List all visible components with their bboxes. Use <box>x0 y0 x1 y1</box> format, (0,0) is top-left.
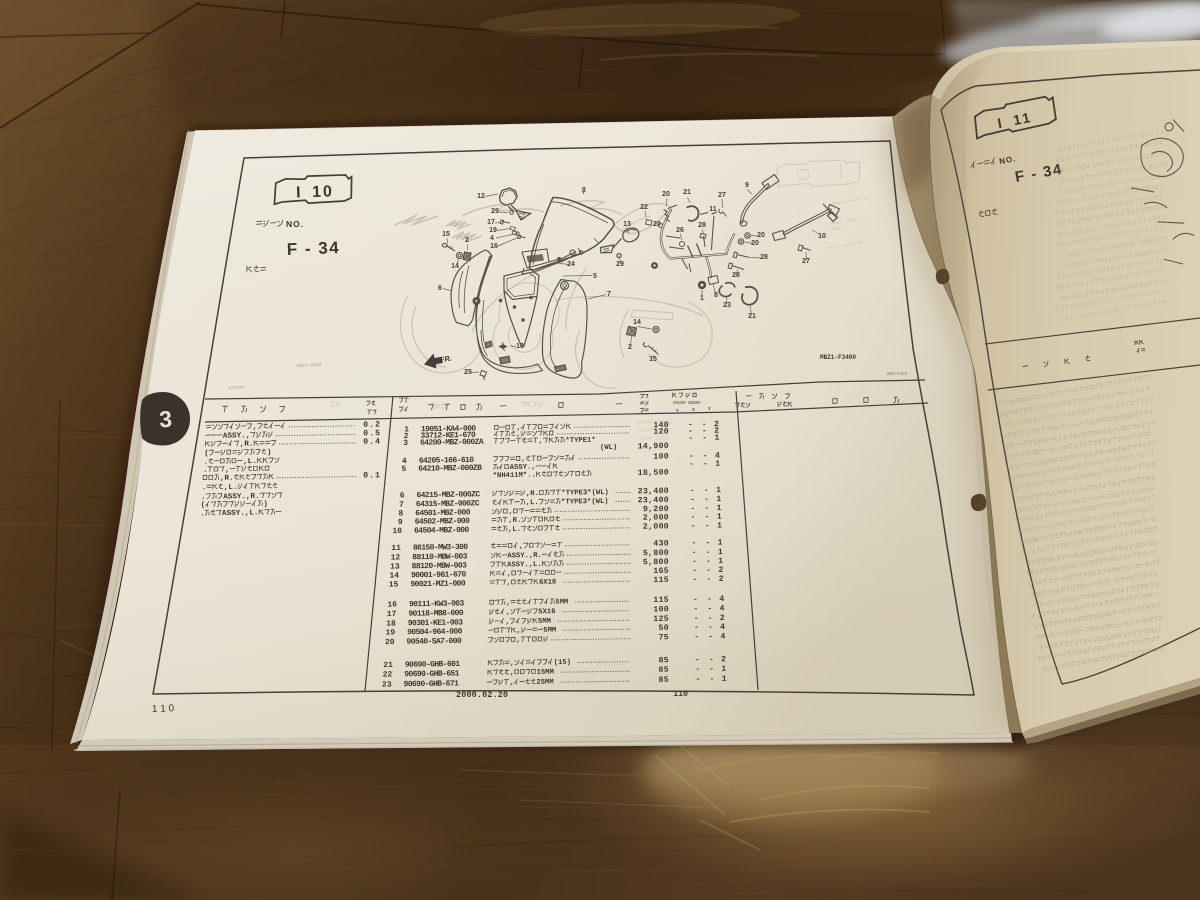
svg-text:50: 50 <box>658 624 669 633</box>
svg-text:0.4: 0.4 <box>363 438 381 447</box>
svg-text:25: 25 <box>464 369 472 376</box>
svg-text:*TYPE1*: *TYPE1* <box>565 437 595 445</box>
svg-text:2: 2 <box>628 344 632 351</box>
svg-text:4: 4 <box>490 235 494 242</box>
svg-text:-: - <box>694 615 699 623</box>
svg-text:*NH411M*..: *NH411M*.. <box>493 472 536 481</box>
svg-text:1: 1 <box>717 513 722 522</box>
svg-text:18,500: 18,500 <box>638 468 669 477</box>
svg-text:(: ( <box>201 502 206 510</box>
svg-text:6: 6 <box>400 491 405 500</box>
svg-text:10: 10 <box>392 527 402 536</box>
svg-text:.: . <box>202 484 207 492</box>
svg-text:.: . <box>200 510 205 518</box>
svg-text:-: - <box>695 666 700 674</box>
svg-text:20: 20 <box>757 232 765 239</box>
svg-text:64200-MBZ-000ZA: 64200-MBZ-000ZA <box>420 438 484 448</box>
svg-text:-: - <box>693 596 698 604</box>
svg-text:-: - <box>710 676 715 684</box>
svg-text:24: 24 <box>567 261 575 268</box>
svg-text:,: , <box>506 609 510 617</box>
svg-text:,R.: ,R. <box>220 475 234 483</box>
svg-text:115: 115 <box>653 576 669 585</box>
svg-text:,: , <box>510 660 514 668</box>
svg-text:-: - <box>705 540 710 548</box>
svg-text:9: 9 <box>398 518 403 527</box>
svg-text:10: 10 <box>312 183 334 201</box>
svg-text:20: 20 <box>751 240 759 247</box>
svg-text:-: - <box>690 496 695 504</box>
svg-text:85: 85 <box>658 656 669 665</box>
svg-text:,L.: ,L. <box>224 484 238 492</box>
svg-text:1: 1 <box>722 675 727 684</box>
svg-text:1: 1 <box>716 486 721 495</box>
svg-text:15: 15 <box>442 231 450 238</box>
svg-text:C0435F C0605F: C0435F C0605F <box>673 402 701 406</box>
svg-text:4: 4 <box>720 623 725 632</box>
svg-text:,: , <box>521 456 525 464</box>
svg-text:-: - <box>708 615 713 623</box>
svg-text:-: - <box>706 558 711 566</box>
svg-text:26: 26 <box>676 227 684 234</box>
svg-text:(15): (15) <box>554 659 571 667</box>
svg-text:-: - <box>692 549 697 557</box>
svg-text:,: , <box>510 669 514 677</box>
svg-text:15MM: 15MM <box>537 669 554 677</box>
svg-text:2: 2 <box>721 655 726 664</box>
svg-text:11: 11 <box>709 206 717 213</box>
svg-text:4: 4 <box>720 604 725 613</box>
svg-text:85: 85 <box>658 676 669 685</box>
svg-text:115: 115 <box>653 596 669 605</box>
svg-text:14: 14 <box>633 319 641 326</box>
svg-text:16: 16 <box>387 600 397 609</box>
svg-text:,: , <box>509 679 513 687</box>
svg-text:23: 23 <box>723 302 731 309</box>
svg-text:4: 4 <box>719 595 724 604</box>
svg-text:100: 100 <box>653 605 669 614</box>
svg-text:23,400: 23,400 <box>638 487 669 496</box>
svg-text:-: - <box>690 487 695 495</box>
svg-text:ASSY.,L.: ASSY.,L. <box>507 561 542 570</box>
svg-text:-: - <box>707 605 712 613</box>
svg-text:2: 2 <box>720 614 725 623</box>
svg-text:,: , <box>516 431 520 439</box>
svg-text:(WL): (WL) <box>600 444 617 452</box>
svg-text:125: 125 <box>653 615 669 624</box>
svg-text:5,800: 5,800 <box>643 558 669 567</box>
svg-text:2000.02.20: 2000.02.20 <box>456 690 508 700</box>
svg-text:2,000: 2,000 <box>643 513 669 522</box>
svg-text:13: 13 <box>390 562 400 571</box>
svg-text:18: 18 <box>516 343 524 350</box>
svg-text:,: , <box>516 637 520 645</box>
svg-text:90690-GHB-671: 90690-GHB-671 <box>404 679 460 689</box>
svg-text:-: - <box>704 496 709 504</box>
svg-text:-: - <box>709 666 714 674</box>
svg-text:-: - <box>694 624 699 632</box>
svg-text:90690-GHB-601: 90690-GHB-601 <box>405 660 461 670</box>
svg-text:): ) <box>267 449 272 457</box>
svg-text:-: - <box>692 567 697 575</box>
svg-text:6: 6 <box>438 285 442 292</box>
svg-text:): ) <box>263 501 268 509</box>
svg-text:.: . <box>203 467 208 475</box>
svg-text:2: 2 <box>465 237 469 244</box>
svg-text:165: 165 <box>653 567 669 576</box>
svg-text:1: 1 <box>714 434 719 443</box>
svg-text:,: , <box>225 466 230 474</box>
svg-text:,L.: ,L. <box>243 458 257 466</box>
svg-text:,: , <box>509 508 513 516</box>
svg-text:90111-KW3-003: 90111-KW3-003 <box>409 599 465 609</box>
svg-text:90540-SA7-000: 90540-SA7-000 <box>406 637 462 647</box>
svg-text:1: 1 <box>718 548 723 557</box>
svg-text:0.1: 0.1 <box>363 471 381 480</box>
svg-text:100: 100 <box>653 452 669 461</box>
svg-text:90504-964-000: 90504-964-000 <box>407 627 463 637</box>
svg-text:Y: Y <box>676 408 679 414</box>
svg-text:2: 2 <box>718 566 723 575</box>
svg-text:5: 5 <box>593 273 597 280</box>
svg-text:90021-MZ1-000: 90021-MZ1-000 <box>410 579 466 589</box>
svg-text:,: , <box>519 543 523 551</box>
svg-text:27: 27 <box>802 258 810 265</box>
svg-text:5: 5 <box>401 465 406 474</box>
svg-text:I: I <box>296 184 301 201</box>
svg-text:,: , <box>506 618 510 626</box>
svg-text:ASSY.,L.: ASSY.,L. <box>222 509 259 518</box>
svg-text:110: 110 <box>673 690 688 699</box>
svg-text:12: 12 <box>391 553 401 562</box>
svg-text:90118-MB8-000: 90118-MB8-000 <box>408 609 464 619</box>
svg-text:14,900: 14,900 <box>638 442 669 451</box>
svg-text:29: 29 <box>616 261 624 268</box>
svg-text:-: - <box>705 514 710 522</box>
svg-text:12: 12 <box>477 193 485 200</box>
svg-text:,L.: ,L. <box>508 526 521 534</box>
svg-text:1: 1 <box>718 539 723 548</box>
svg-text:-: - <box>693 606 698 614</box>
svg-text:Y: Y <box>708 406 711 412</box>
svg-text:1: 1 <box>715 460 720 469</box>
svg-text:MBZ1-F3400: MBZ1-F3400 <box>820 354 856 361</box>
svg-text:-: - <box>707 576 712 584</box>
svg-text:13: 13 <box>623 221 631 228</box>
svg-text:-: - <box>707 596 712 604</box>
svg-text:D37149: D37149 <box>229 386 245 391</box>
svg-text:-: - <box>694 634 699 642</box>
svg-text:11: 11 <box>391 544 401 553</box>
svg-text:*TYPE3*(WL): *TYPE3*(WL) <box>561 489 609 498</box>
svg-text:86150-MW3-300: 86150-MW3-300 <box>413 543 469 553</box>
svg-text:-: - <box>704 505 709 513</box>
svg-text:-: - <box>708 624 713 632</box>
svg-text:,: , <box>506 599 510 607</box>
svg-text:02E7-1020: 02E7-1020 <box>297 362 322 369</box>
svg-text:27: 27 <box>718 192 726 199</box>
svg-text:19: 19 <box>385 628 395 637</box>
svg-text:17: 17 <box>387 610 397 619</box>
svg-text:10: 10 <box>818 233 826 240</box>
svg-text:5MM: 5MM <box>538 618 551 626</box>
svg-text:,R.: ,R. <box>526 490 539 498</box>
svg-text:-: - <box>695 657 700 665</box>
svg-text:2,000: 2,000 <box>643 522 669 531</box>
svg-text:14: 14 <box>389 571 399 580</box>
svg-text:-: - <box>689 453 694 461</box>
svg-text:*TYPE3*(WL): *TYPE3*(WL) <box>561 498 609 507</box>
svg-text:1: 1 <box>717 522 722 531</box>
svg-text:-: - <box>689 461 694 469</box>
svg-text:3: 3 <box>403 439 408 448</box>
svg-text:.: . <box>201 494 206 502</box>
svg-text:F - 34: F - 34 <box>286 238 340 259</box>
svg-text:,R.: ,R. <box>240 441 254 449</box>
svg-text:20: 20 <box>385 638 395 647</box>
svg-text:-: - <box>709 656 714 664</box>
svg-text:-: - <box>708 633 713 641</box>
svg-text:6X18: 6X18 <box>539 579 556 587</box>
svg-text:64504-MBZ-000: 64504-MBZ-000 <box>414 526 470 536</box>
svg-text:,R.: ,R. <box>508 517 521 525</box>
svg-text:17: 17 <box>487 219 495 226</box>
svg-text:-: - <box>690 505 695 513</box>
svg-text:-: - <box>691 523 696 531</box>
svg-text:19: 19 <box>489 227 497 234</box>
svg-text:75: 75 <box>658 633 669 642</box>
svg-text:-: - <box>703 453 708 461</box>
svg-text:,: , <box>253 423 258 431</box>
svg-text:1: 1 <box>716 495 721 504</box>
svg-text:1: 1 <box>718 557 723 566</box>
svg-text:-: - <box>691 540 696 548</box>
svg-text:-: - <box>704 487 709 495</box>
svg-text:5MM: 5MM <box>555 598 568 606</box>
svg-text:22: 22 <box>640 204 648 211</box>
svg-text:28: 28 <box>698 222 706 229</box>
svg-text:-: - <box>703 461 708 469</box>
svg-text:22: 22 <box>383 670 393 679</box>
svg-text:,: , <box>539 437 543 445</box>
svg-text:1: 1 <box>721 665 726 674</box>
svg-text:ASSY.,R.: ASSY.,R. <box>223 493 260 502</box>
svg-text:20: 20 <box>653 221 661 228</box>
svg-text:64210-MBZ-000ZB: 64210-MBZ-000ZB <box>418 464 482 474</box>
svg-text:,: , <box>517 627 521 635</box>
svg-text:25MM: 25MM <box>536 679 553 687</box>
svg-text:18: 18 <box>386 619 396 628</box>
svg-text:15: 15 <box>389 580 399 589</box>
svg-text:5,800: 5,800 <box>643 549 669 558</box>
svg-text:21: 21 <box>383 661 393 670</box>
svg-text:ASSY.,R.: ASSY.,R. <box>507 552 542 561</box>
svg-text:14: 14 <box>451 263 459 270</box>
svg-text:1: 1 <box>700 295 704 302</box>
svg-text:21: 21 <box>748 313 756 320</box>
svg-text:120: 120 <box>653 428 669 437</box>
svg-text:29: 29 <box>491 208 499 215</box>
svg-text:430: 430 <box>653 539 669 548</box>
svg-text:-: - <box>692 558 697 566</box>
svg-text:7: 7 <box>399 500 404 509</box>
svg-text:ASSY.,: ASSY., <box>223 432 250 440</box>
svg-text:,L.: ,L. <box>526 499 539 507</box>
svg-text:-: - <box>688 435 693 443</box>
svg-text:,: , <box>507 570 511 578</box>
svg-text:28: 28 <box>732 272 740 279</box>
svg-text:20: 20 <box>662 191 670 198</box>
svg-text:3: 3 <box>159 406 173 433</box>
svg-text:(: ( <box>204 450 209 458</box>
svg-text:4: 4 <box>720 632 725 641</box>
svg-text:-: - <box>693 576 698 584</box>
svg-text:5X16: 5X16 <box>538 608 555 616</box>
svg-text:NO.: NO. <box>286 219 304 229</box>
svg-text:-: - <box>702 435 707 443</box>
svg-text:85: 85 <box>658 666 669 675</box>
svg-text:15: 15 <box>649 356 657 363</box>
svg-text:5MM: 5MM <box>543 627 556 635</box>
svg-text:7: 7 <box>607 291 611 298</box>
svg-text:-: - <box>706 567 711 575</box>
svg-text:2: 2 <box>719 575 724 584</box>
svg-text:8: 8 <box>714 292 718 299</box>
svg-text:28: 28 <box>760 254 768 261</box>
svg-text:WBCY3466: WBCY3466 <box>887 373 908 377</box>
svg-text:X: X <box>692 407 695 413</box>
svg-text:1 1 0: 1 1 0 <box>152 703 175 715</box>
svg-text:23: 23 <box>382 680 392 689</box>
svg-text:-: - <box>696 676 701 684</box>
svg-text:.: . <box>204 459 209 467</box>
svg-text:3: 3 <box>582 187 586 194</box>
svg-text:,: , <box>507 579 511 587</box>
svg-text:16: 16 <box>490 243 498 250</box>
svg-text:9: 9 <box>745 182 749 189</box>
svg-text:90690-GHB-651: 90690-GHB-651 <box>404 669 460 679</box>
svg-text:-: - <box>691 514 696 522</box>
svg-text:-: - <box>706 549 711 557</box>
svg-text:21: 21 <box>683 189 691 196</box>
svg-text:-: - <box>705 523 710 531</box>
